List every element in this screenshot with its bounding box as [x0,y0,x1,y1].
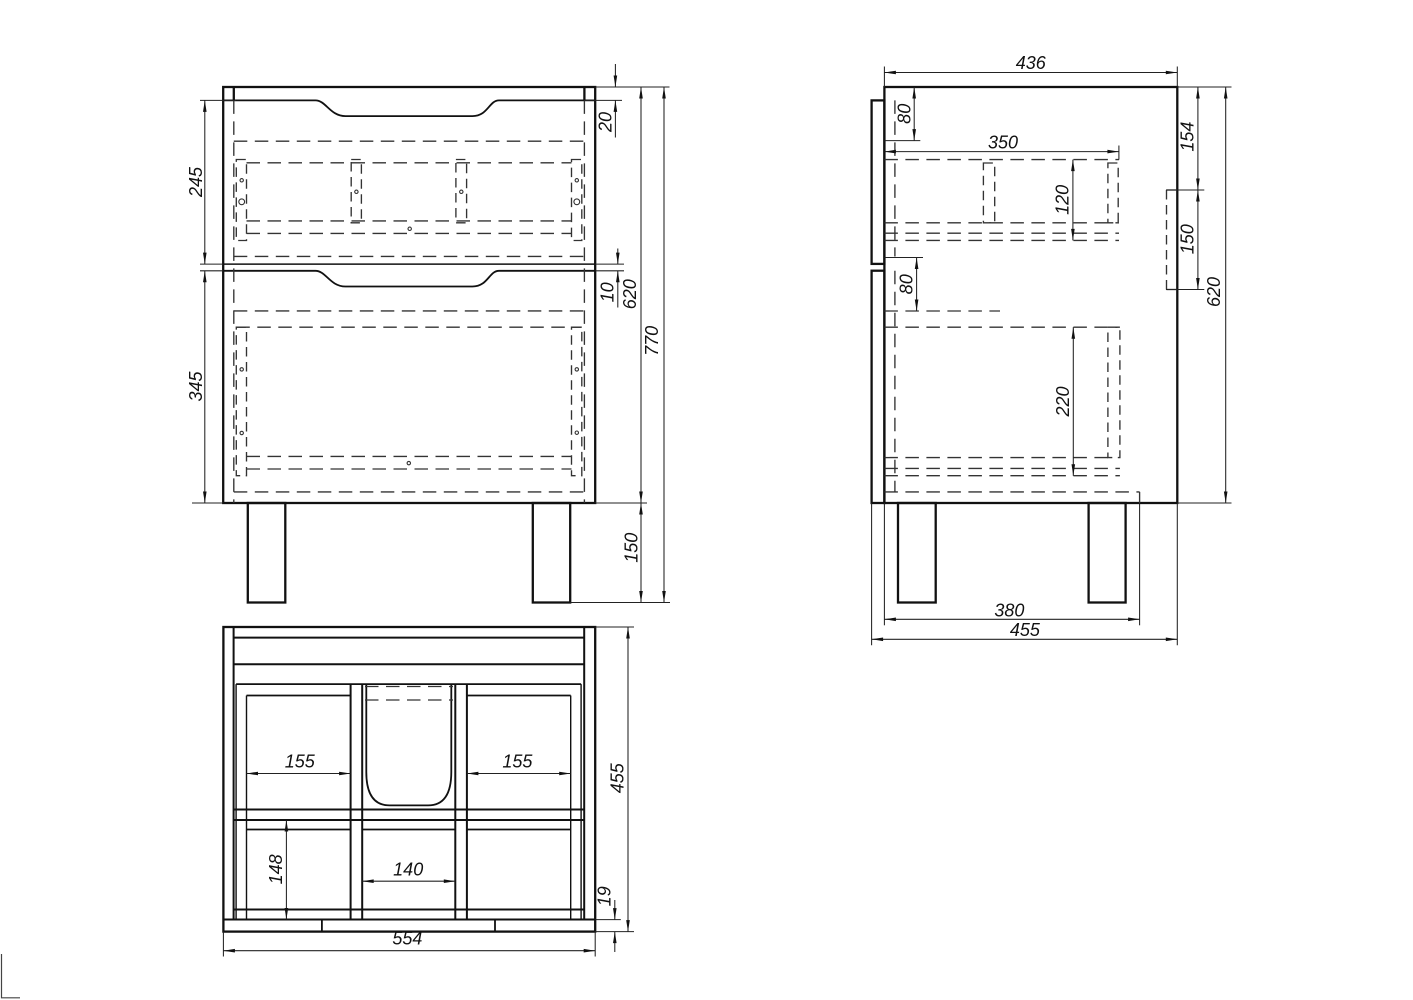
svg-text:350: 350 [988,132,1018,152]
svg-text:80: 80 [896,274,916,294]
svg-text:155: 155 [285,752,316,772]
svg-text:620: 620 [620,279,640,309]
svg-text:455: 455 [608,762,628,793]
svg-text:80: 80 [894,104,914,124]
svg-text:10: 10 [597,282,617,302]
svg-text:20: 20 [595,112,615,133]
svg-text:345: 345 [186,371,206,402]
svg-text:380: 380 [994,600,1024,620]
svg-text:620: 620 [1204,277,1224,307]
svg-text:150: 150 [1178,224,1198,254]
svg-text:154: 154 [1178,122,1198,152]
svg-text:770: 770 [642,326,662,356]
svg-text:155: 155 [502,752,533,772]
svg-text:554: 554 [392,929,422,949]
svg-text:148: 148 [266,854,286,884]
svg-text:455: 455 [1010,620,1041,640]
svg-text:140: 140 [393,860,423,880]
svg-text:245: 245 [186,166,206,198]
svg-text:19: 19 [595,886,615,906]
svg-text:120: 120 [1053,185,1073,215]
svg-text:150: 150 [621,533,641,563]
svg-text:220: 220 [1053,386,1073,417]
svg-text:436: 436 [1016,53,1047,73]
